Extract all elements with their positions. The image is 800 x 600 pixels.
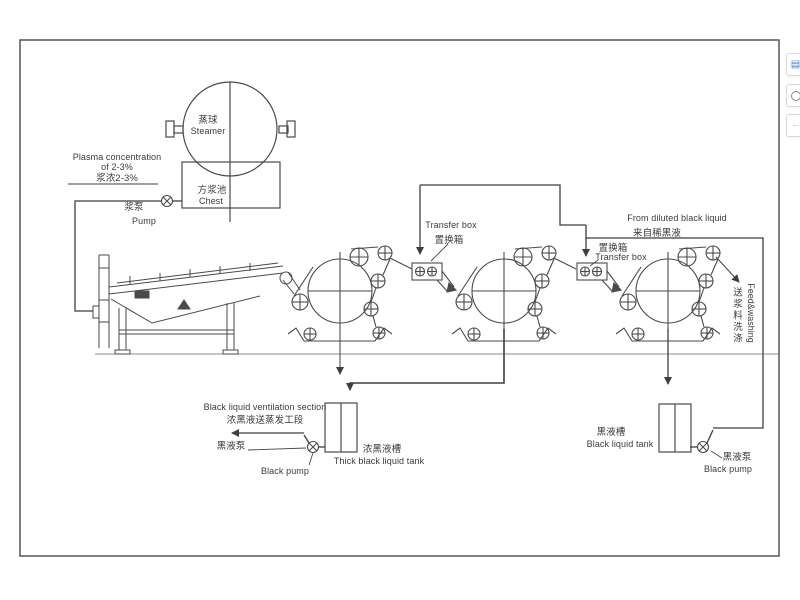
feed-conveyor-machine bbox=[93, 255, 300, 354]
chest-label-en: Chest bbox=[199, 196, 223, 206]
diagram-canvas bbox=[0, 0, 800, 600]
feed-washing-label-en: Feed&washing bbox=[746, 283, 756, 343]
more-dots-icon: ·· bbox=[793, 121, 799, 130]
black-pump-left-label-cn: 黑液泵 bbox=[217, 438, 246, 452]
diluted-liquid-label-en: From diluted black liquid bbox=[627, 213, 727, 223]
thick-black-tank-label-cn: 浓黑液槽 bbox=[363, 441, 401, 455]
toolbar-button-1[interactable]: ▤ bbox=[786, 53, 800, 76]
steamer-label-cn: 蒸球 bbox=[198, 112, 217, 126]
stock-consistency-line3: 浆浓2-3% bbox=[96, 170, 138, 184]
evaporation-label-en: Black liquid ventilation section bbox=[204, 402, 327, 412]
clock-circle-icon bbox=[791, 91, 800, 101]
transfer-box-1 bbox=[412, 263, 456, 292]
drawing-border bbox=[20, 40, 779, 556]
transfer-box-1-label-en: Transfer box bbox=[425, 220, 476, 230]
toolbar-button-2[interactable] bbox=[786, 84, 800, 107]
stock-pump-label-cn: 浆泵 bbox=[124, 199, 143, 213]
black-pump-right-label-cn: 黑液泵 bbox=[723, 449, 752, 463]
steamer-label-en: Steamer bbox=[191, 126, 226, 136]
transfer-box-2-label-en: Transfer box bbox=[595, 252, 646, 262]
transfer-box-2 bbox=[577, 263, 621, 292]
chest-label-cn: 方浆池 bbox=[198, 182, 227, 196]
stock-pump-label-en: Pump bbox=[132, 216, 156, 226]
thick-black-tank-label-en: Thick black liquid tank bbox=[334, 456, 424, 466]
toolbar-button-3[interactable]: ·· bbox=[786, 114, 800, 137]
steamer-vessel bbox=[166, 82, 295, 222]
diluted-liquid-label-cn: 来自稀黑液 bbox=[633, 225, 681, 239]
black-tank-label-cn: 黑液槽 bbox=[597, 424, 626, 438]
feed-washing-label-cn: 送浆料洗涤 bbox=[729, 287, 743, 345]
process-flow-diagram-page: 蒸球 Steamer 方浆池 Chest Plasma concentratio… bbox=[0, 0, 800, 600]
black-pump-left-label-en: Black pump bbox=[261, 466, 309, 476]
washer-unit-1 bbox=[288, 246, 392, 341]
black-tank-label-en: Black liquid tank bbox=[587, 439, 654, 449]
washer-unit-2 bbox=[452, 246, 556, 341]
evaporation-label-cn: 浓黑液送蒸发工段 bbox=[227, 412, 304, 426]
transfer-box-1-label-cn: 置换箱 bbox=[435, 232, 464, 246]
black-pump-right-label-en: Black pump bbox=[704, 464, 752, 474]
stock-consistency-line1: Plasma concentration bbox=[73, 152, 162, 162]
blue-document-icon: ▤ bbox=[791, 60, 800, 70]
